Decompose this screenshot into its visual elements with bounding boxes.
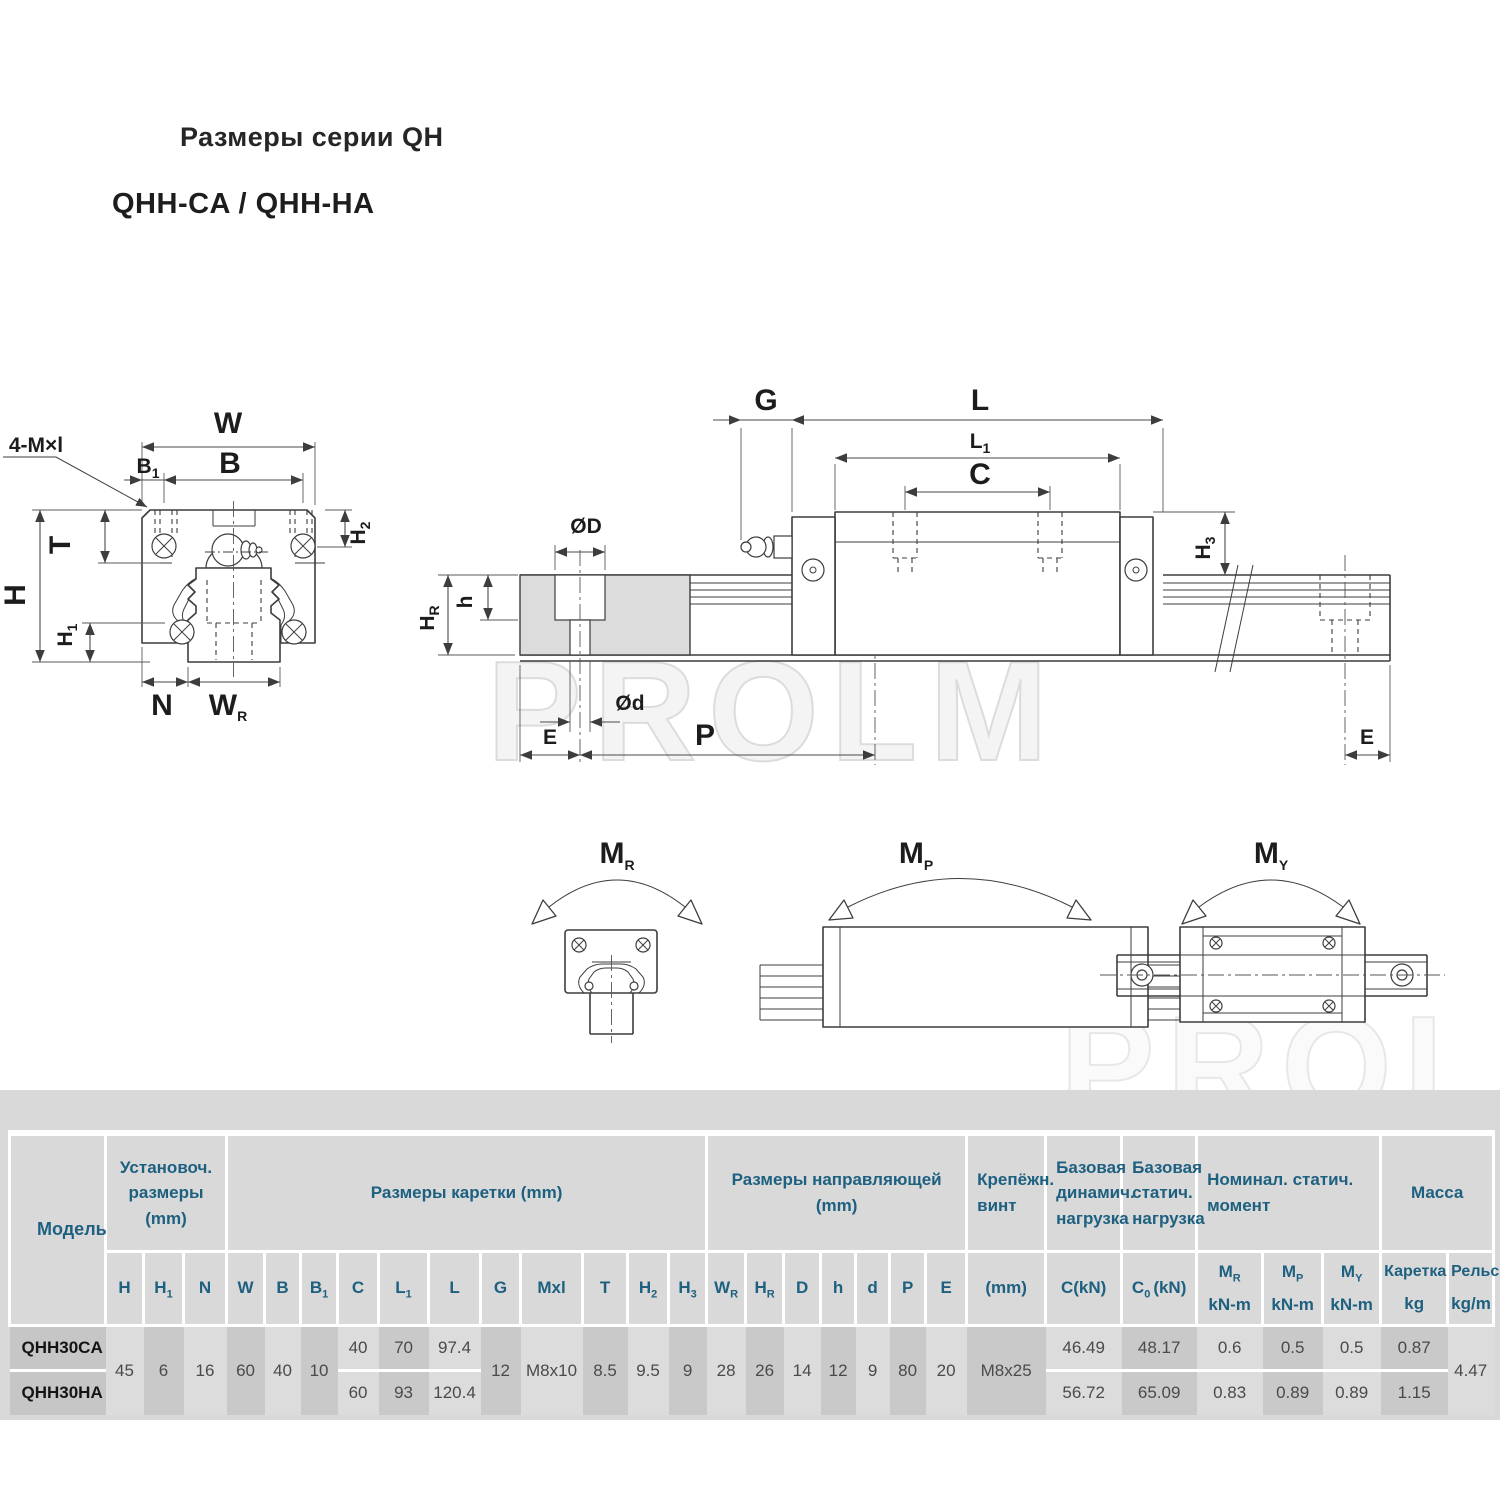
grease-nipple bbox=[741, 536, 792, 558]
group-carriage-dims: Размеры каретки (mm) bbox=[227, 1133, 707, 1251]
cell-ckn: 56.72 bbox=[1046, 1370, 1122, 1415]
datasheet-page: { "page": { "title": "Размеры серии QH",… bbox=[0, 0, 1500, 1500]
moment-mp: MP bbox=[760, 837, 1185, 1027]
col-header-ckn: C(kN) bbox=[1046, 1251, 1122, 1325]
moment-my: MY bbox=[1100, 837, 1445, 1022]
cell-wr: 28 bbox=[707, 1325, 746, 1415]
col-header-c: C bbox=[338, 1251, 379, 1325]
dim-label-h3: H3 bbox=[1192, 536, 1218, 559]
dim-label-b1: B1 bbox=[137, 455, 160, 481]
col-header-b1: B1 bbox=[301, 1251, 338, 1325]
cell-c: 40 bbox=[338, 1325, 379, 1370]
col-header-d-cap: D bbox=[784, 1251, 821, 1325]
cell-h2: 9.5 bbox=[628, 1325, 669, 1415]
col-header-p: P bbox=[890, 1251, 926, 1325]
dim-label-p: P bbox=[695, 719, 715, 752]
col-header-h-small: h bbox=[821, 1251, 856, 1325]
col-header-d: d bbox=[856, 1251, 890, 1325]
model-cell: QHH30HA bbox=[10, 1370, 106, 1415]
col-header-h: H bbox=[106, 1251, 144, 1325]
my-block bbox=[1100, 927, 1445, 1022]
col-header-hr: HR bbox=[746, 1251, 784, 1325]
spec-table: Модель Установоч. размеры (mm) Размеры к… bbox=[8, 1130, 1495, 1415]
dim-label-e-left: E bbox=[543, 726, 557, 749]
cell-h-small: 12 bbox=[821, 1325, 856, 1415]
screw-note-label: 4-M×l bbox=[9, 434, 63, 457]
col-header-c0kn: C0(kN) bbox=[1122, 1251, 1197, 1325]
front-view-drawing: 4-M×l W B1 B T H H1 H2 N WR bbox=[0, 385, 410, 735]
col-header-mp: MPkN-m bbox=[1263, 1251, 1323, 1325]
moment-mr: MR bbox=[532, 837, 702, 1043]
cell-mr: 0.6 bbox=[1197, 1325, 1263, 1370]
cell-kg: 0.87 bbox=[1381, 1325, 1448, 1370]
cell-p: 80 bbox=[890, 1325, 926, 1415]
dim-label-l: L bbox=[971, 384, 989, 417]
dim-label-t: T bbox=[44, 536, 77, 554]
cell-ckn: 46.49 bbox=[1046, 1325, 1122, 1370]
col-header-l: L bbox=[429, 1251, 481, 1325]
dim-label-dd: Ød bbox=[615, 692, 644, 715]
group-mass: Масса bbox=[1381, 1133, 1494, 1251]
cell-c0kn: 65.09 bbox=[1122, 1370, 1197, 1415]
cell-c0kn: 48.17 bbox=[1122, 1325, 1197, 1370]
cell-mp: 0.89 bbox=[1263, 1370, 1323, 1415]
dim-label-w: W bbox=[214, 407, 243, 440]
dim-label-e-right: E bbox=[1360, 726, 1374, 749]
cell-kg: 1.15 bbox=[1381, 1370, 1448, 1415]
cell-b: 40 bbox=[265, 1325, 301, 1415]
mp-label: MP bbox=[899, 837, 933, 873]
cell-c: 60 bbox=[338, 1370, 379, 1415]
break-marks bbox=[1215, 565, 1253, 672]
cell-l1: 93 bbox=[379, 1370, 429, 1415]
dim-label-n: N bbox=[151, 689, 173, 722]
group-static-load: Базовая статич. нагрузка bbox=[1122, 1133, 1197, 1251]
cell-h3: 9 bbox=[669, 1325, 707, 1415]
dim-label-b: B bbox=[219, 447, 241, 480]
table-row-qhh30ca: QHH30CA 45 6 16 60 40 10 40 70 97.4 12 M… bbox=[10, 1325, 1494, 1370]
col-header-n: N bbox=[184, 1251, 227, 1325]
mr-label: MR bbox=[599, 837, 634, 873]
cell-g: 12 bbox=[481, 1325, 521, 1415]
col-header-w: W bbox=[227, 1251, 265, 1325]
dim-label-wr: WR bbox=[209, 689, 247, 724]
series-subtitle: QHH-CA / QHH-HA bbox=[112, 188, 375, 221]
page-title: Размеры серии QH bbox=[180, 122, 444, 153]
dim-label-hr: HR bbox=[420, 605, 442, 630]
col-header-e: E bbox=[926, 1251, 967, 1325]
col-header-my: MYkN-m bbox=[1323, 1251, 1381, 1325]
dim-label-h1: H1 bbox=[54, 623, 80, 646]
dim-label-h2: H2 bbox=[347, 521, 373, 544]
dim-label-h-depth: h bbox=[454, 596, 477, 609]
cell-e: 20 bbox=[926, 1325, 967, 1415]
cell-hr: 26 bbox=[746, 1325, 784, 1415]
cell-mr: 0.83 bbox=[1197, 1370, 1263, 1415]
col-header-b: B bbox=[265, 1251, 301, 1325]
dim-label-dD: ØD bbox=[570, 515, 602, 538]
cell-mp: 0.5 bbox=[1263, 1325, 1323, 1370]
cell-rail-kgm: 4.47 bbox=[1448, 1325, 1494, 1415]
cell-my: 0.89 bbox=[1323, 1370, 1381, 1415]
cell-screw: M8x25 bbox=[967, 1325, 1046, 1415]
cell-l: 97.4 bbox=[429, 1325, 481, 1370]
col-header-screw-mm: (mm) bbox=[967, 1251, 1046, 1325]
mp-block bbox=[760, 927, 1185, 1027]
col-header-h1: H1 bbox=[144, 1251, 184, 1325]
col-header-h3: H3 bbox=[669, 1251, 707, 1325]
dim-label-c: C bbox=[969, 458, 991, 491]
cell-h: 45 bbox=[106, 1325, 144, 1415]
mr-block bbox=[565, 930, 657, 1043]
cell-mxl: M8x10 bbox=[521, 1325, 583, 1415]
dim-label-l1: L1 bbox=[970, 430, 991, 456]
moment-diagrams: MR MP bbox=[0, 815, 1500, 1105]
cell-d: 9 bbox=[856, 1325, 890, 1415]
model-column-header: Модель bbox=[10, 1133, 106, 1325]
cell-b1: 10 bbox=[301, 1325, 338, 1415]
side-view-drawing: G L L1 C ØD h HR H3 Ød E P E bbox=[420, 380, 1490, 780]
cell-l1: 70 bbox=[379, 1325, 429, 1370]
col-header-h2: H2 bbox=[628, 1251, 669, 1325]
carriage-side bbox=[741, 512, 1153, 655]
cell-d-cap: 14 bbox=[784, 1325, 821, 1415]
cell-t: 8.5 bbox=[583, 1325, 628, 1415]
group-install-dims: Установоч. размеры (mm) bbox=[106, 1133, 227, 1251]
col-header-l1: L1 bbox=[379, 1251, 429, 1325]
col-header-rail-kgm: Рельсkg/m bbox=[1448, 1251, 1494, 1325]
cell-h1: 6 bbox=[144, 1325, 184, 1415]
col-header-mr: MRkN-m bbox=[1197, 1251, 1263, 1325]
model-cell: QHH30CA bbox=[10, 1325, 106, 1370]
spec-table-section: Модель Установоч. размеры (mm) Размеры к… bbox=[0, 1090, 1500, 1420]
cell-w: 60 bbox=[227, 1325, 265, 1415]
col-header-wr: WR bbox=[707, 1251, 746, 1325]
col-header-carriage-kg: Кареткаkg bbox=[1381, 1251, 1448, 1325]
group-dynamic-load: Базовая динамич. нагрузка bbox=[1046, 1133, 1122, 1251]
col-header-g: G bbox=[481, 1251, 521, 1325]
dim-label-g: G bbox=[754, 384, 777, 417]
cell-l: 120.4 bbox=[429, 1370, 481, 1415]
col-header-mxl: Mxl bbox=[521, 1251, 583, 1325]
dim-label-h: H bbox=[0, 584, 32, 606]
col-header-t: T bbox=[583, 1251, 628, 1325]
group-static-moment: Номинал. статич. момент bbox=[1197, 1133, 1381, 1251]
my-label: MY bbox=[1254, 837, 1289, 873]
group-rail-dims: Размеры направляющей (mm) bbox=[707, 1133, 967, 1251]
cell-my: 0.5 bbox=[1323, 1325, 1381, 1370]
cell-n: 16 bbox=[184, 1325, 227, 1415]
group-mounting-screw: Крепёжн. винт bbox=[967, 1133, 1046, 1251]
